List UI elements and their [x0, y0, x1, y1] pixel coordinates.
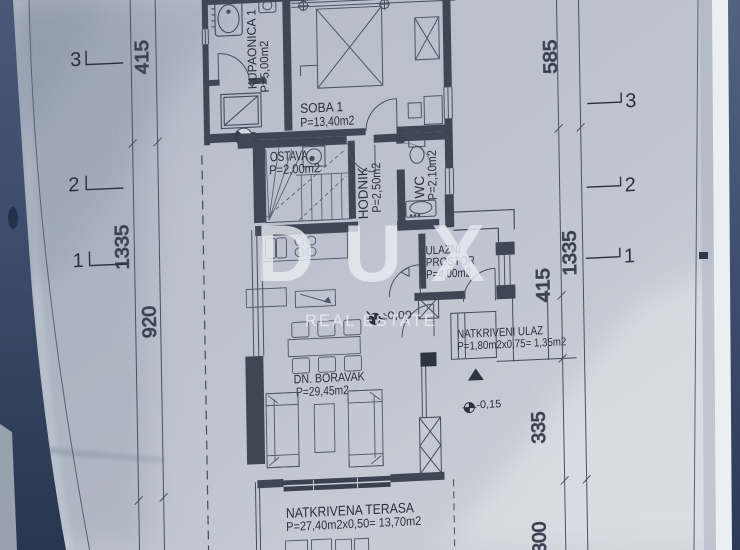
svg-text:P=2,00m2: P=2,00m2: [269, 160, 320, 177]
svg-text:2: 2: [624, 174, 635, 196]
svg-text:1: 1: [72, 250, 83, 272]
svg-text:920: 920: [139, 305, 161, 338]
svg-text:P=2,50m2: P=2,50m2: [369, 162, 384, 213]
svg-text:P=5,00m2: P=5,00m2: [257, 40, 272, 93]
svg-text:-0,15: -0,15: [476, 398, 501, 411]
svg-text:415: 415: [533, 268, 555, 303]
svg-text:3: 3: [70, 49, 81, 71]
svg-text:2: 2: [68, 174, 79, 196]
svg-text:335: 335: [528, 411, 550, 444]
svg-text:1335: 1335: [112, 224, 134, 270]
svg-text:415: 415: [132, 40, 154, 75]
svg-text:REAL ESTATE: REAL ESTATE: [305, 312, 437, 330]
svg-text:1335: 1335: [559, 230, 581, 276]
svg-text:585: 585: [540, 39, 562, 74]
svg-text:3: 3: [625, 90, 636, 112]
svg-text:1: 1: [624, 245, 635, 267]
svg-text:P=2,10m2: P=2,10m2: [425, 150, 440, 201]
svg-text:DUX: DUX: [256, 209, 514, 299]
svg-text:P=13,40m2: P=13,40m2: [300, 113, 354, 130]
svg-text:300: 300: [529, 521, 551, 550]
svg-text:P=29,45m2: P=29,45m2: [296, 383, 349, 399]
